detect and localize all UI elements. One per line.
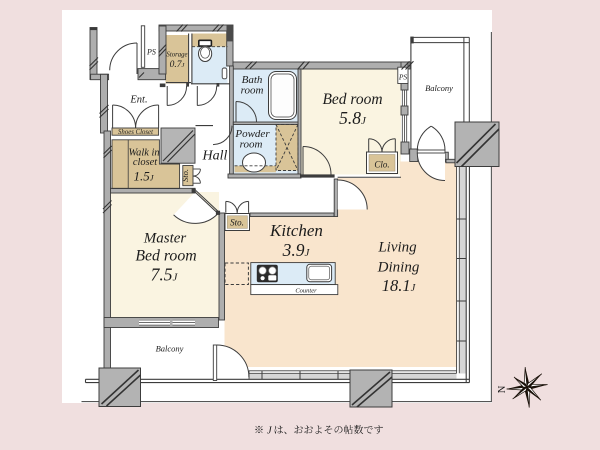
- svg-text:Hall: Hall: [202, 149, 228, 164]
- svg-text:Counter: Counter: [295, 287, 317, 294]
- svg-text:0.7J: 0.7J: [170, 60, 186, 70]
- svg-text:Bed room: Bed room: [135, 248, 196, 265]
- svg-text:Sto.: Sto.: [230, 218, 244, 228]
- svg-text:PS: PS: [398, 73, 408, 82]
- svg-text:Ent.: Ent.: [129, 95, 147, 106]
- svg-text:Living: Living: [377, 240, 417, 256]
- svg-text:Bed room: Bed room: [322, 91, 382, 108]
- svg-text:Shoes Closet: Shoes Closet: [118, 129, 154, 136]
- svg-text:room: room: [240, 139, 263, 151]
- svg-text:closet: closet: [133, 157, 158, 168]
- svg-text:Balcony: Balcony: [156, 344, 184, 354]
- svg-text:Storage: Storage: [166, 52, 187, 59]
- svg-text:Kitchen: Kitchen: [269, 221, 323, 240]
- svg-text:PS: PS: [146, 48, 156, 57]
- svg-text:N: N: [497, 385, 508, 393]
- svg-text:Clo.: Clo.: [374, 160, 389, 170]
- svg-text:Master: Master: [143, 231, 187, 247]
- svg-text:Dining: Dining: [377, 260, 420, 276]
- svg-text:room: room: [241, 85, 264, 97]
- svg-text:Balcony: Balcony: [425, 83, 453, 93]
- svg-text:Sto.: Sto.: [180, 169, 190, 182]
